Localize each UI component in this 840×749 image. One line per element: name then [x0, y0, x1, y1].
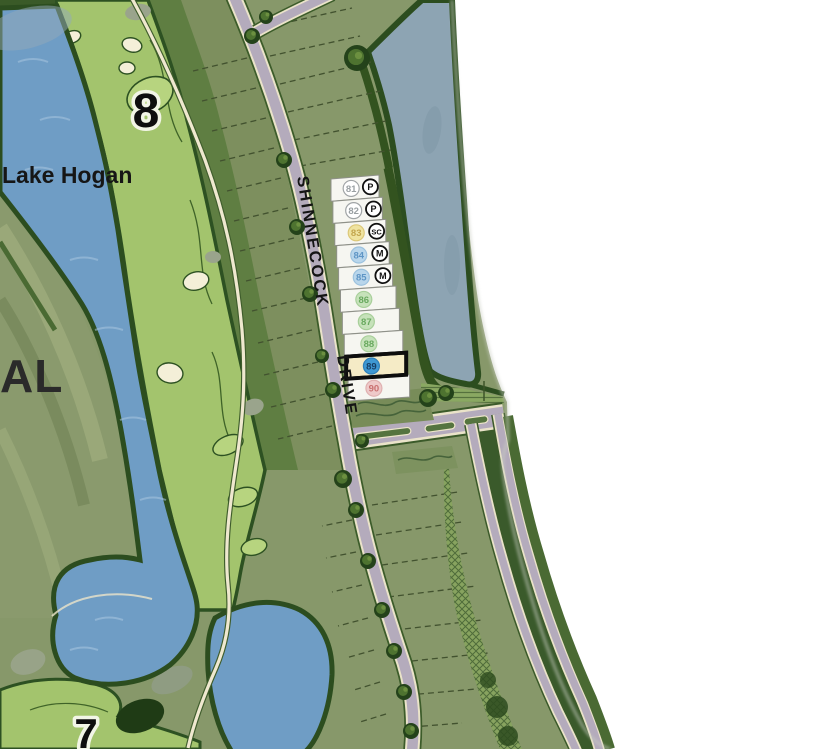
lot-number-label: 87: [361, 317, 372, 328]
lot-status-badge-label: P: [370, 204, 376, 214]
tree-icon: [276, 152, 292, 168]
lot-number-label: 85: [356, 273, 367, 284]
lot-number-label: 86: [359, 295, 370, 306]
tree-icon: [344, 45, 370, 71]
lot-row-87[interactable]: 87: [342, 308, 399, 334]
lot-number-label: 88: [364, 339, 375, 350]
tree-icon: [259, 10, 273, 24]
site-plan-map: 81P82P83SC84M85M8687888990 Lake Hogan 8 …: [0, 0, 840, 749]
lot-number-label: 89: [366, 361, 377, 372]
lot-row-81[interactable]: 81P: [331, 175, 379, 201]
hole-8-label: 8: [133, 85, 160, 138]
lot-status-badge-label: M: [376, 249, 384, 259]
tree-icon: [315, 349, 329, 363]
lake-name-label: Lake Hogan: [2, 162, 132, 188]
lot-number-label: 90: [369, 384, 380, 395]
lot-status-badge-label: M: [379, 271, 387, 281]
tree-icon: [419, 389, 437, 407]
tree-icon: [334, 470, 352, 488]
tree-icon: [386, 643, 402, 659]
lot-number-label: 82: [348, 206, 359, 217]
tree-icon: [348, 502, 364, 518]
lot-row-82[interactable]: 82P: [333, 197, 383, 223]
tree-icon: [244, 28, 260, 44]
tree-icon: [438, 385, 454, 401]
tree-icon: [396, 684, 412, 700]
lot-row-84[interactable]: 84M: [337, 242, 390, 268]
map-canvas: 81P82P83SC84M85M8687888990 Lake Hogan 8 …: [0, 0, 840, 749]
lot-status-badge-label: P: [367, 182, 373, 192]
hole-7-label: 7: [74, 710, 97, 749]
lot-number-label: 84: [353, 250, 364, 261]
lot-number-label: 81: [346, 184, 357, 195]
tree-icon: [403, 723, 419, 739]
tree-icon: [355, 434, 369, 448]
tree-icon: [374, 602, 390, 618]
tree-icon: [360, 553, 376, 569]
lot-number-label: 83: [351, 228, 362, 239]
lot-row-85[interactable]: 85M: [339, 264, 393, 290]
lot-row-86[interactable]: 86: [341, 286, 397, 312]
edge-partial-label: AL: [0, 350, 63, 402]
lot-row-83[interactable]: 83SC: [335, 219, 386, 245]
lot-status-badge-label: SC: [371, 227, 382, 236]
